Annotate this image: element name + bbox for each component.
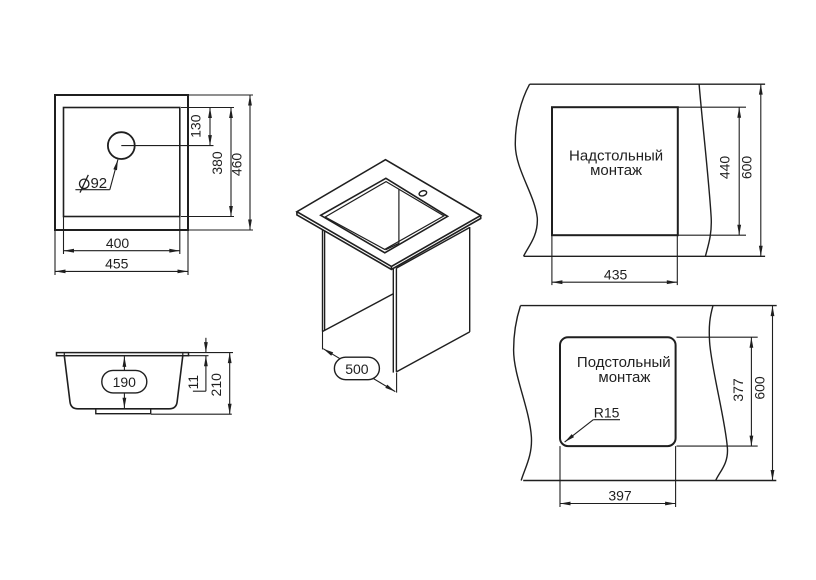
svg-text:190: 190	[113, 374, 137, 390]
svg-text:R15: R15	[594, 404, 620, 420]
svg-text:600: 600	[752, 376, 768, 400]
svg-text:455: 455	[105, 256, 129, 272]
svg-text:600: 600	[739, 156, 755, 180]
svg-text:377: 377	[730, 378, 746, 402]
svg-text:440: 440	[717, 156, 733, 180]
svg-text:500: 500	[345, 361, 369, 377]
svg-text:11: 11	[185, 375, 201, 390]
svg-text:монтаж: монтаж	[598, 369, 650, 386]
svg-text:92: 92	[90, 175, 107, 192]
svg-text:210: 210	[208, 373, 224, 397]
svg-text:130: 130	[188, 114, 204, 138]
svg-text:397: 397	[608, 488, 632, 504]
svg-text:монтаж: монтаж	[590, 162, 642, 179]
svg-text:380: 380	[209, 151, 225, 175]
svg-text:400: 400	[106, 235, 130, 251]
svg-text:460: 460	[229, 153, 245, 177]
svg-text:435: 435	[604, 267, 628, 283]
